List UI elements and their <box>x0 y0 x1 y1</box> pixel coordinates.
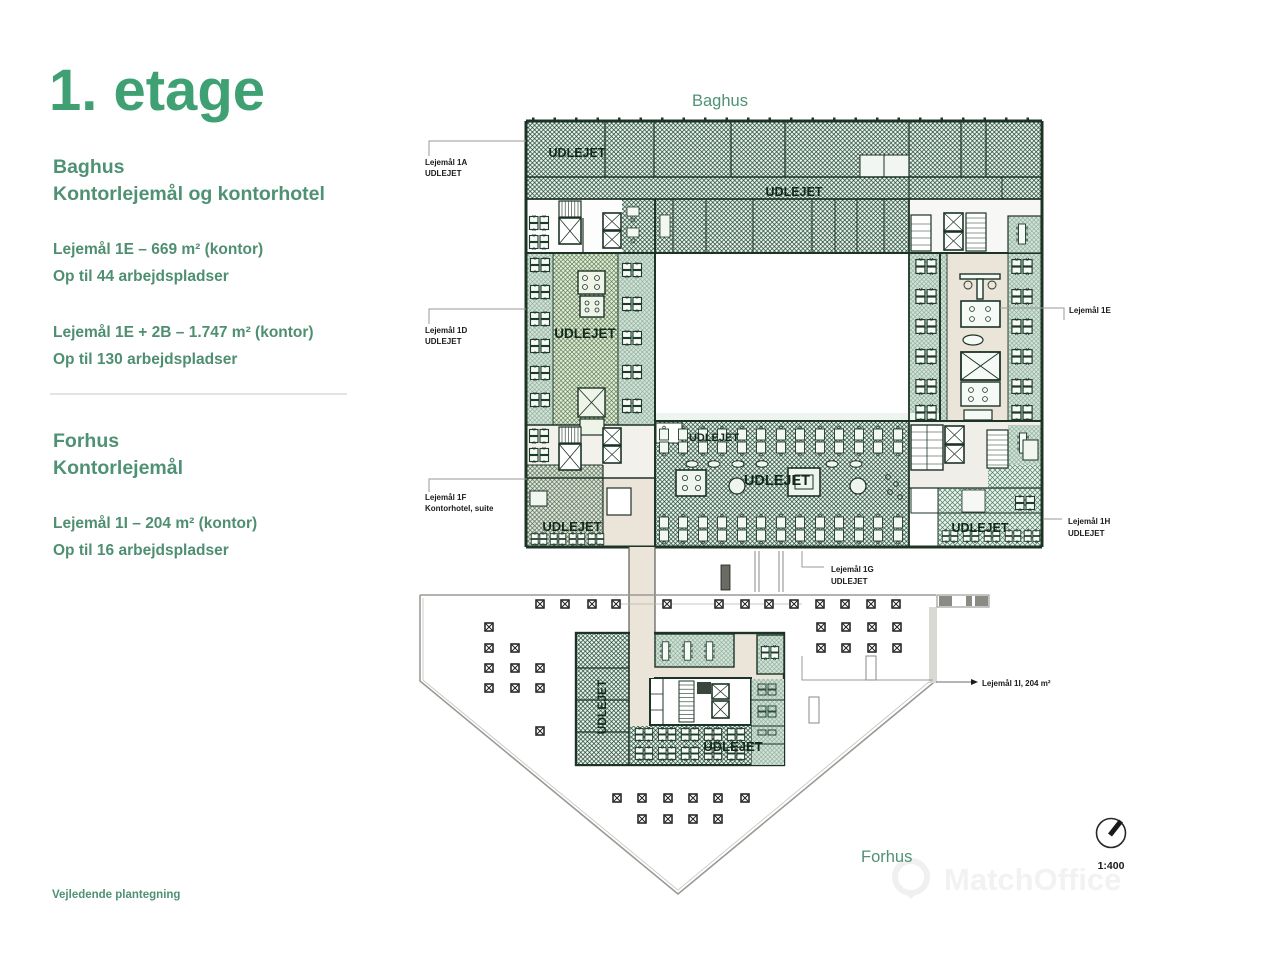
svg-text:1:400: 1:400 <box>1098 860 1125 872</box>
svg-text:MatchOffice: MatchOffice <box>944 862 1121 897</box>
svg-text:UDLEJET: UDLEJET <box>689 432 739 444</box>
svg-text:UDLEJET: UDLEJET <box>703 739 762 754</box>
svg-text:Lejemål 1F: Lejemål 1F <box>425 493 466 502</box>
svg-text:UDLEJET: UDLEJET <box>425 337 462 346</box>
svg-text:Lejemål 1E – 669 m² (kontor): Lejemål 1E – 669 m² (kontor) <box>53 241 263 258</box>
svg-text:UDLEJET: UDLEJET <box>595 679 609 734</box>
svg-text:UDLEJET: UDLEJET <box>542 519 601 534</box>
svg-text:Baghus: Baghus <box>53 156 125 178</box>
svg-text:Kontorhotel, suite: Kontorhotel, suite <box>425 504 494 513</box>
svg-text:Lejemål 1E + 2B – 1.747 m² (ko: Lejemål 1E + 2B – 1.747 m² (kontor) <box>53 324 314 341</box>
svg-text:Lejemål 1I – 204 m² (kontor): Lejemål 1I – 204 m² (kontor) <box>53 515 257 532</box>
svg-text:1. etage: 1. etage <box>49 58 265 123</box>
svg-text:Lejemål 1A: Lejemål 1A <box>425 158 467 167</box>
svg-text:Op til 44 arbejdspladser: Op til 44 arbejdspladser <box>53 268 229 285</box>
svg-text:Forhus: Forhus <box>53 430 119 452</box>
svg-text:Forhus: Forhus <box>861 848 912 866</box>
svg-text:Lejemål 1I, 204 m²: Lejemål 1I, 204 m² <box>982 679 1051 688</box>
svg-text:UDLEJET: UDLEJET <box>766 185 823 199</box>
svg-text:UDLEJET: UDLEJET <box>744 473 810 489</box>
svg-text:Lejemål 1D: Lejemål 1D <box>425 326 467 335</box>
svg-text:Lejemål 1H: Lejemål 1H <box>1068 517 1110 526</box>
svg-text:Lejemål 1E: Lejemål 1E <box>1069 306 1111 315</box>
svg-text:Op til 16 arbejdspladser: Op til 16 arbejdspladser <box>53 542 229 559</box>
svg-text:Vejledende plantegning: Vejledende plantegning <box>52 889 180 901</box>
svg-text:UDLEJET: UDLEJET <box>952 521 1009 535</box>
svg-text:Lejemål 1G: Lejemål 1G <box>831 565 874 574</box>
svg-text:Op til 130 arbejdspladser: Op til 130 arbejdspladser <box>53 351 237 368</box>
svg-text:UDLEJET: UDLEJET <box>1068 529 1105 538</box>
svg-text:Kontorlejemål og kontorhotel: Kontorlejemål og kontorhotel <box>53 182 325 205</box>
svg-text:UDLEJET: UDLEJET <box>549 146 606 160</box>
svg-text:UDLEJET: UDLEJET <box>554 326 616 341</box>
svg-text:Kontorlejemål: Kontorlejemål <box>53 456 183 479</box>
svg-text:UDLEJET: UDLEJET <box>831 577 868 586</box>
svg-text:UDLEJET: UDLEJET <box>425 169 462 178</box>
svg-text:Baghus: Baghus <box>692 92 748 110</box>
